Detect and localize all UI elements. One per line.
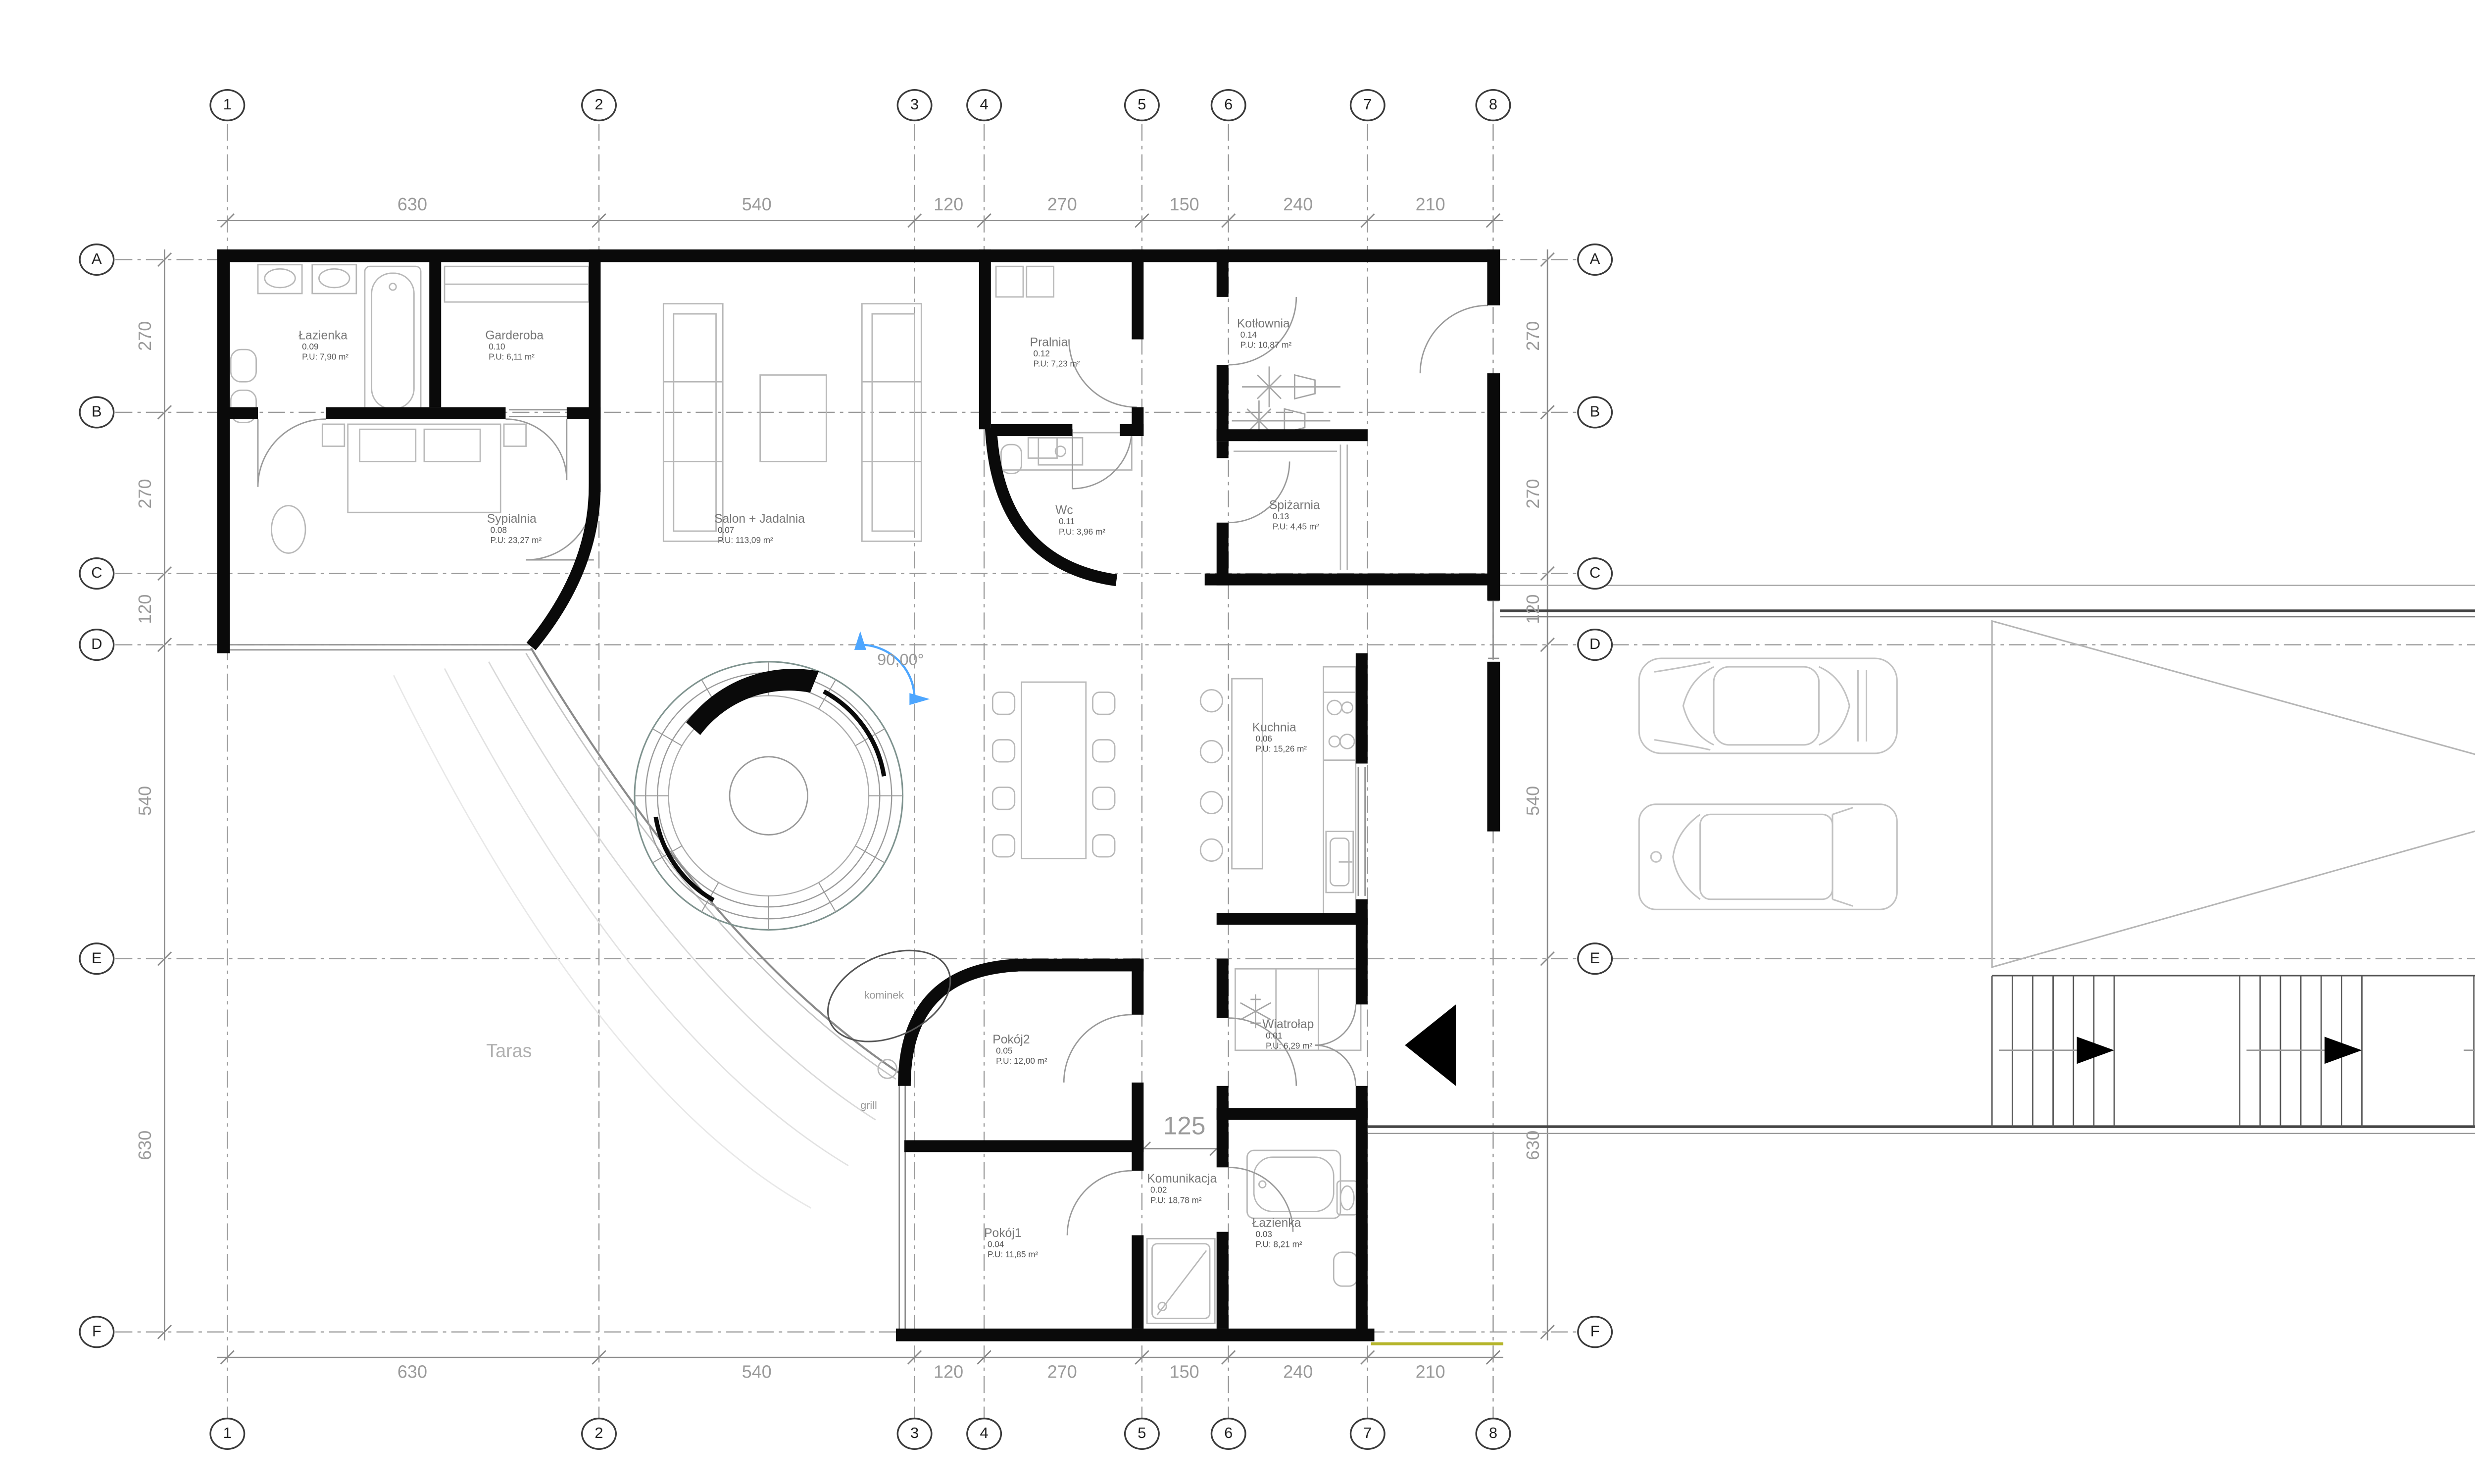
grid-bubble-row-A-left: A — [79, 244, 114, 276]
dim-top-120: 120 — [934, 195, 963, 215]
room-label-garderoba: Garderoba 0.10 P.U: 6,11 m² — [485, 328, 544, 364]
dim-bottom-630: 630 — [397, 1363, 427, 1383]
floor-plan-drawing — [0, 0, 2475, 1483]
dim-bottom-540: 540 — [742, 1363, 772, 1383]
shower — [1147, 1238, 1215, 1323]
room-label-wiatrolap: Wiatrołap 0.01 P.U: 6,29 m² — [1262, 1016, 1314, 1053]
dim-top-540: 540 — [742, 195, 772, 215]
entrance-arrow — [1405, 1004, 1456, 1086]
grid-bubble-col-3-bottom: 3 — [897, 1418, 933, 1450]
car-top-view-2 — [1639, 804, 1897, 910]
dim-top-240: 240 — [1283, 195, 1313, 215]
dim-top-150: 150 — [1170, 195, 1199, 215]
kitchen-island — [1232, 679, 1263, 869]
nightstand-1 — [322, 424, 345, 446]
stair-treads — [1992, 976, 2475, 1127]
angle-label: 90,00° — [877, 651, 924, 670]
nightstand-2 — [504, 424, 526, 446]
dim-top-210: 210 — [1416, 195, 1445, 215]
furniture — [231, 265, 1361, 1324]
grid-bubble-row-B-right: B — [1577, 396, 1613, 428]
toilet-1 — [231, 349, 256, 382]
grid-bubble-row-F-right: F — [1577, 1316, 1613, 1348]
grid-bubble-col-6-top: 6 — [1211, 89, 1246, 121]
dim-bottom-150: 150 — [1170, 1363, 1199, 1383]
room-label-pokoj1: Pokój1 0.04 P.U: 11,85 m² — [984, 1225, 1038, 1262]
room-label-wc: Wc 0.11 P.U: 3,96 m² — [1055, 502, 1105, 539]
room-label-komunikacja: Komunikacja 0.02 P.U: 18,78 m² — [1147, 1171, 1217, 1207]
grid-bubble-row-E-left: E — [79, 942, 114, 975]
walls — [217, 249, 1500, 1341]
dim-top-270: 270 — [1047, 195, 1077, 215]
dim-bottom-240: 240 — [1283, 1363, 1313, 1383]
dim-bottom-270: 270 — [1047, 1363, 1077, 1383]
wc-toilet — [1001, 445, 1021, 473]
grid-bubble-col-2-top: 2 — [581, 89, 617, 121]
dim-bottom-120: 120 — [934, 1363, 963, 1383]
grid-bubble-col-8-bottom: 8 — [1475, 1418, 1511, 1450]
washer — [996, 266, 1023, 297]
sofa-1 — [663, 304, 723, 542]
dim-right-270b: 270 — [1524, 479, 1544, 508]
dim-bottom-210: 210 — [1416, 1363, 1445, 1383]
dining-table — [1022, 682, 1086, 858]
room-label-lazienka-09: Łazienka 0.09 P.U: 7,90 m² — [298, 328, 348, 364]
glazing — [229, 410, 1499, 1329]
room-label-kuchnia: Kuchnia 0.06 P.U: 15,26 m² — [1252, 719, 1307, 756]
room-label-pokoj2: Pokój2 0.05 P.U: 12,00 m² — [992, 1032, 1047, 1068]
grid-bubble-row-C-right: C — [1577, 557, 1613, 590]
dim-interior-125: 125 — [1163, 1112, 1206, 1141]
room-label-sypialnia: Sypialnia 0.08 P.U: 23,27 m² — [487, 511, 542, 547]
grid-bubble-row-E-right: E — [1577, 942, 1613, 975]
grid-bubble-col-7-bottom: 7 — [1350, 1418, 1386, 1450]
dim-right-630: 630 — [1524, 1131, 1544, 1160]
grid-bubble-col-1-bottom: 1 — [209, 1418, 245, 1450]
grid-bubble-col-5-top: 5 — [1124, 89, 1160, 121]
dryer — [1027, 266, 1054, 297]
grill-label: grill — [860, 1100, 877, 1112]
grid-bubble-row-C-left: C — [79, 557, 114, 590]
dim-left-270a: 270 — [136, 321, 156, 351]
car-top-view-1 — [1639, 658, 1897, 753]
circular-fireplace — [635, 662, 903, 930]
grid-bubble-row-D-left: D — [79, 629, 114, 661]
dim-top-630: 630 — [397, 195, 427, 215]
stool — [1200, 690, 1223, 712]
driveway-and-stairs — [1368, 586, 2475, 1344]
coffee-table — [760, 375, 827, 462]
grid-bubble-col-4-bottom: 4 — [966, 1418, 1002, 1450]
dim-left-270b: 270 — [136, 479, 156, 508]
dim-right-270a: 270 — [1524, 321, 1544, 351]
stair-direction-arrows — [1999, 1037, 2475, 1064]
dim-right-120: 120 — [1524, 594, 1544, 624]
grid-bubble-col-1-top: 1 — [209, 89, 245, 121]
grid-bubble-row-F-left: F — [79, 1316, 114, 1348]
room-label-salon-jadalnia: Salon + Jadalnia 0.07 P.U: 113,09 m² — [714, 511, 805, 547]
dim-right-540: 540 — [1524, 786, 1544, 816]
grid-bubble-col-2-bottom: 2 — [581, 1418, 617, 1450]
dim-left-120: 120 — [136, 594, 156, 624]
room-label-spizarnia: Spiżarnia 0.13 P.U: 4,45 m² — [1269, 497, 1320, 534]
grid-bubble-row-D-right: D — [1577, 629, 1613, 661]
grid-bubble-row-A-right: A — [1577, 244, 1613, 276]
room-label-lazienka-03: Łazienka 0.03 P.U: 8,21 m² — [1252, 1215, 1302, 1251]
dim-left-630: 630 — [136, 1131, 156, 1160]
grid-bubble-col-3-top: 3 — [897, 89, 933, 121]
room-label-pralnia: Pralnia 0.12 P.U: 7,23 m² — [1030, 334, 1080, 371]
grid-bubble-col-6-bottom: 6 — [1211, 1418, 1246, 1450]
sofa-2 — [862, 304, 921, 542]
dim-left-540: 540 — [136, 786, 156, 816]
kominek-label: kominek — [864, 990, 904, 1002]
curved-walls — [531, 428, 1117, 1086]
grid-bubble-row-B-left: B — [79, 396, 114, 428]
rug — [271, 505, 305, 553]
toilet-2 — [1334, 1252, 1357, 1286]
grid-bubble-col-7-top: 7 — [1350, 89, 1386, 121]
taras-label: Taras — [486, 1042, 532, 1062]
wc-sink — [1028, 438, 1057, 458]
grid-bubble-col-5-bottom: 5 — [1124, 1418, 1160, 1450]
terrace-arcs — [394, 648, 901, 1208]
floor-plan-sheet: 1 2 3 4 5 6 7 8 1 2 3 4 5 6 7 8 A B C D … — [0, 0, 2475, 1483]
grid-bubble-col-8-top: 8 — [1475, 89, 1511, 121]
room-label-kotlownia: Kotłownia 0.14 P.U: 10,87 m² — [1237, 316, 1291, 352]
grid-bubble-col-4-top: 4 — [966, 89, 1002, 121]
bathtub-1 — [365, 266, 421, 416]
dimension-lines — [158, 214, 1554, 1364]
